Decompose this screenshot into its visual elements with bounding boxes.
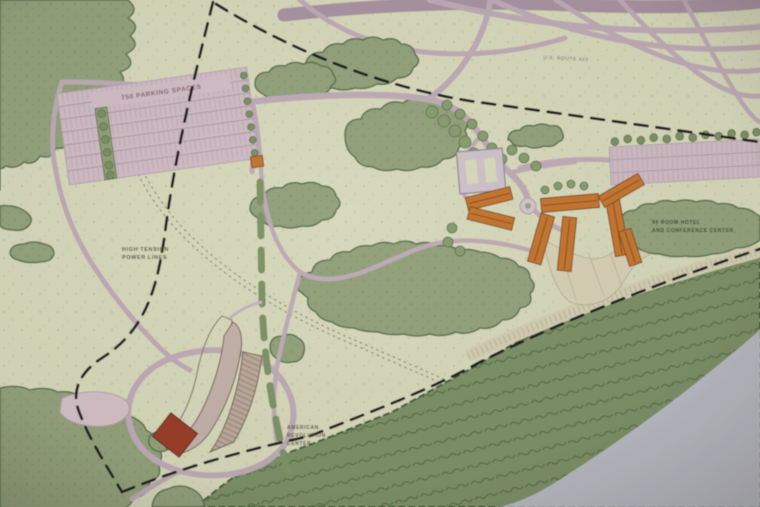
photo-tint <box>0 0 760 507</box>
site-plan-photo: 750 PARKING SPACES <box>0 0 760 507</box>
site-plan-map: 750 PARKING SPACES <box>0 0 760 507</box>
